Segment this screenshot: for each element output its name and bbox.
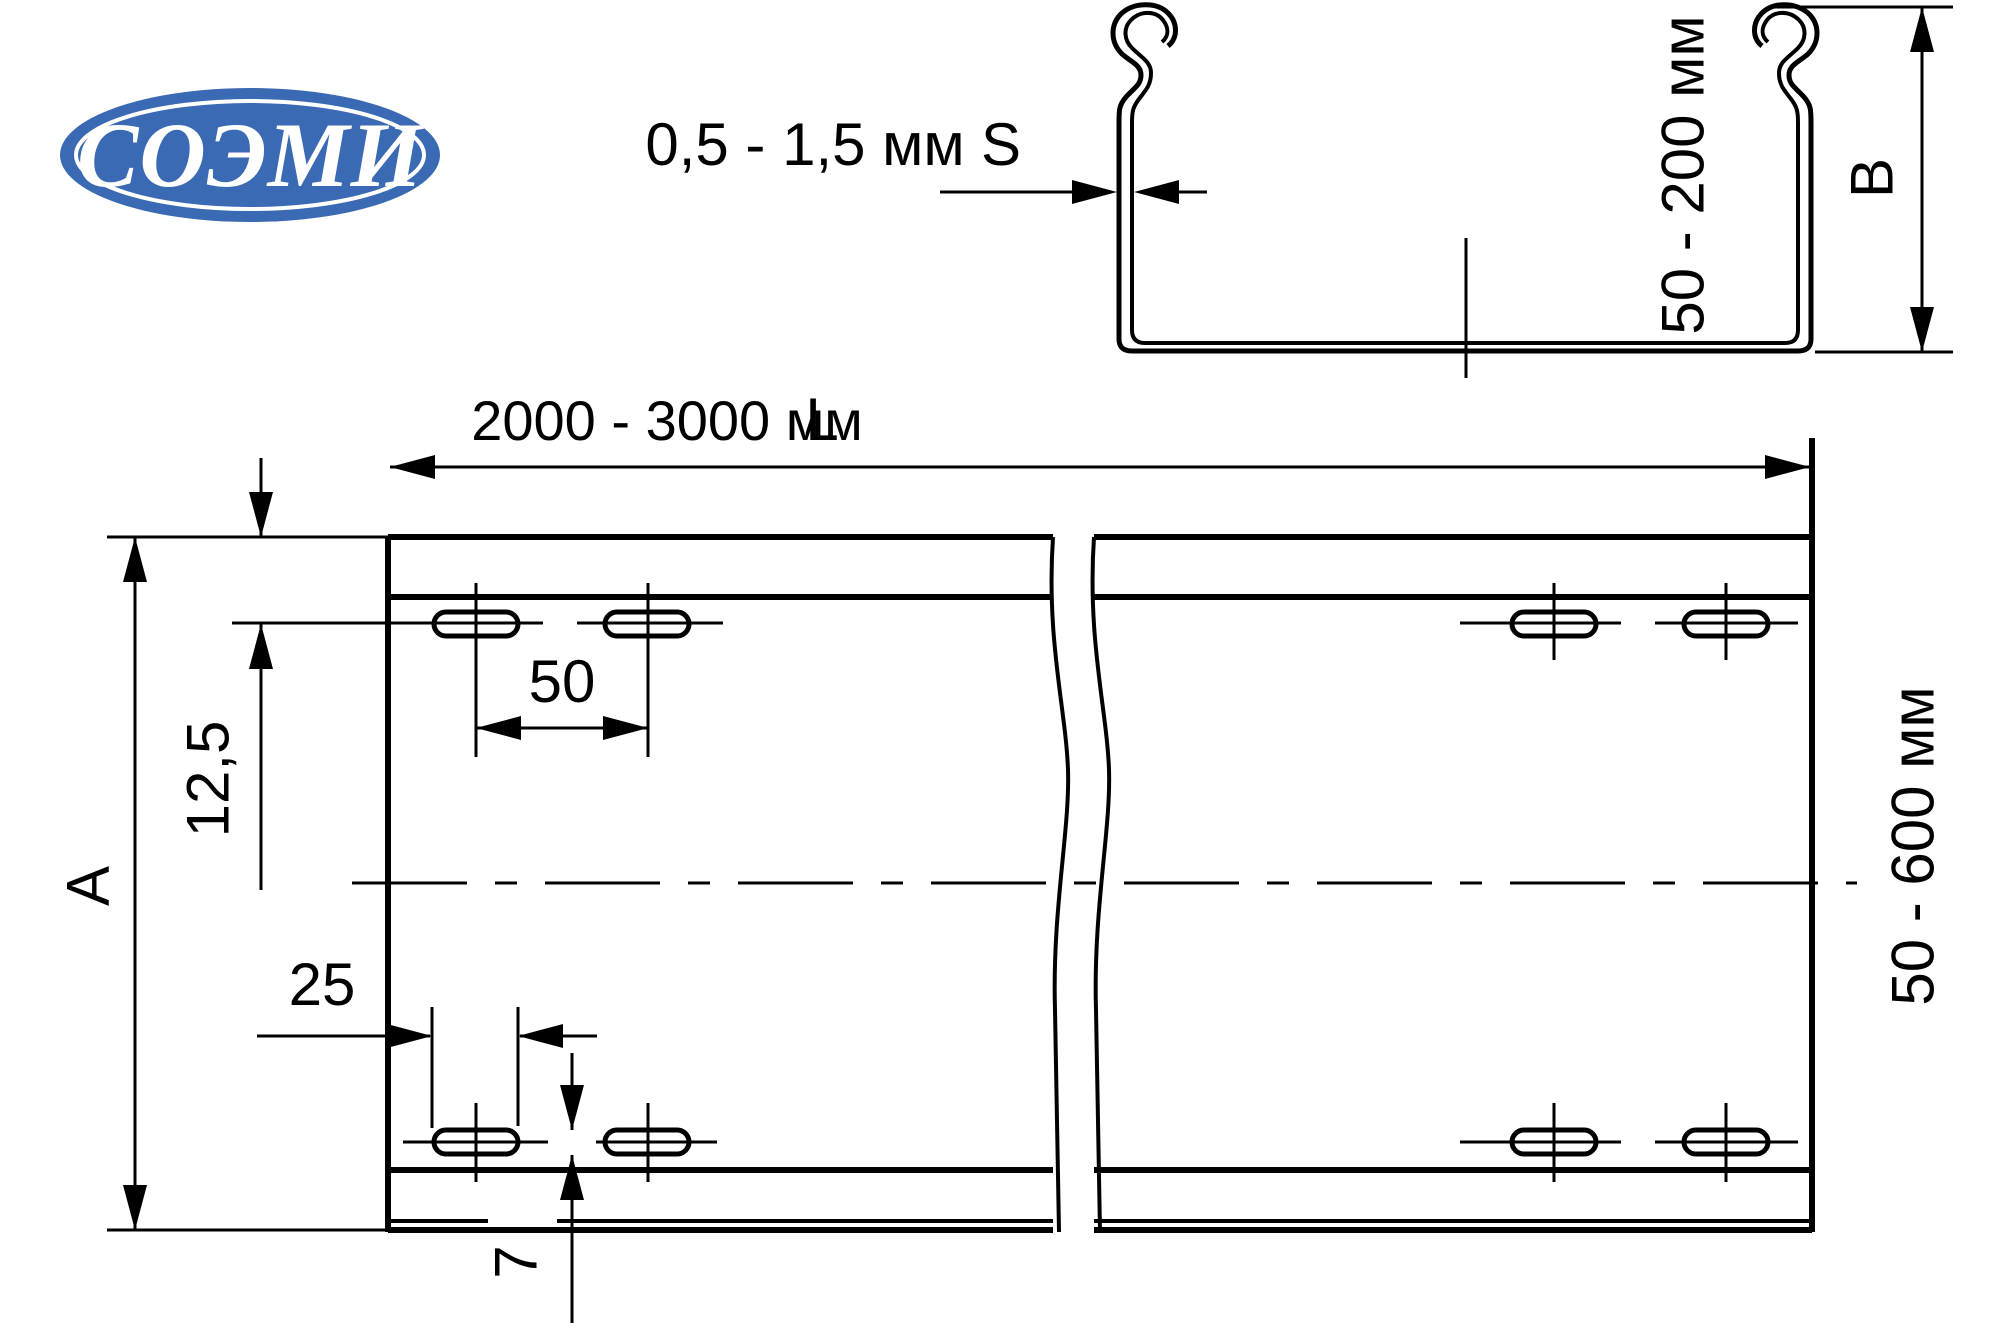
width-arrow-top: [123, 537, 147, 582]
width-value-label: 50 - 600 мм: [1880, 686, 1947, 1005]
thickness-dimension: [940, 180, 1207, 204]
hole-width-arrow-down: [560, 1085, 584, 1130]
hole-offset-dimension: [249, 458, 273, 890]
width-symbol-label: A: [55, 866, 122, 906]
profile-section-view: [940, 5, 1953, 378]
thickness-arrow-right: [1134, 180, 1179, 204]
width-arrow-bottom: [123, 1185, 147, 1230]
length-value-label: 2000 - 3000 мм: [471, 389, 862, 452]
thickness-symbol-label: S: [981, 111, 1021, 178]
height-arrow-bottom: [1910, 307, 1934, 352]
logo-text: СОЭМИ: [77, 104, 424, 206]
slot-group-top-left: [232, 583, 723, 757]
company-logo: СОЭМИ: [60, 88, 440, 222]
length-arrow-left: [390, 455, 435, 479]
technical-drawing: СОЭМИ 0,5 - 1,5 мм S: [0, 0, 2000, 1333]
hole-width-arrow-up: [560, 1155, 584, 1200]
hole-width-dimension: [560, 1053, 584, 1323]
height-arrow-top: [1910, 7, 1934, 52]
break-line-left: [1052, 537, 1069, 1232]
offset-arrow-up: [249, 624, 273, 669]
hole-length-arrow-left: [387, 1024, 432, 1048]
hole-width-label: 7: [483, 1245, 550, 1278]
width-dimension: [107, 537, 388, 1230]
thickness-arrow-left: [1072, 180, 1117, 204]
length-dimension: [390, 455, 1810, 479]
pitch-arrow-left: [476, 716, 521, 740]
plan-view: [107, 438, 1857, 1323]
hole-pitch-dimension: [476, 716, 648, 740]
length-arrow-right: [1765, 455, 1810, 479]
hole-length-dimension: [257, 1007, 597, 1128]
length-symbol-label: L: [805, 386, 838, 453]
hole-length-label: 25: [289, 951, 356, 1018]
section-height-symbol-label: B: [1839, 158, 1906, 198]
hole-offset-label: 12,5: [175, 721, 242, 838]
pitch-arrow-right: [603, 716, 648, 740]
right-hook-inner: [1763, 13, 1805, 123]
offset-arrow-down: [249, 492, 273, 537]
drawing-sheet: СОЭМИ 0,5 - 1,5 мм S: [0, 0, 2000, 1333]
hole-pitch-label: 50: [529, 648, 596, 715]
left-hook-inner: [1125, 13, 1167, 123]
hole-length-arrow-right: [518, 1024, 563, 1048]
thickness-value-label: 0,5 - 1,5 мм: [645, 111, 964, 178]
section-height-value-label: 50 - 200 мм: [1650, 15, 1717, 334]
